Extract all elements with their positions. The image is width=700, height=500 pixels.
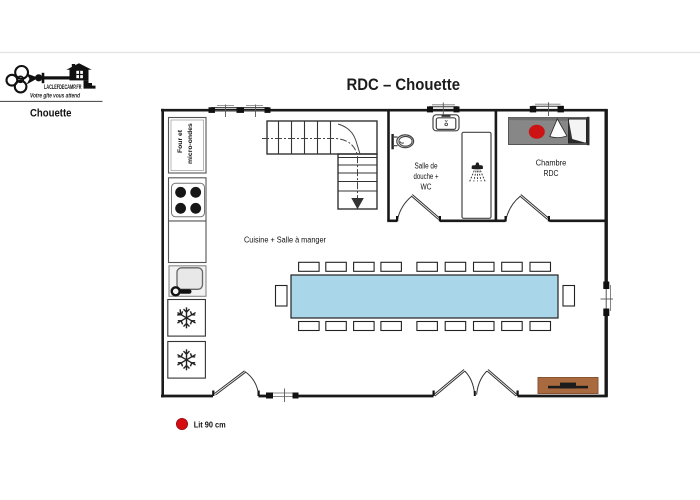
- svg-text:Lit 90 cm: Lit 90 cm: [194, 420, 226, 429]
- svg-text:WC: WC: [421, 182, 432, 191]
- svg-text:Votre gîte vous attend: Votre gîte vous attend: [30, 93, 80, 99]
- svg-text:LACLEFDECAMP.FR: LACLEFDECAMP.FR: [44, 85, 82, 91]
- svg-text:douche +: douche +: [414, 172, 439, 181]
- svg-text:Salle de: Salle de: [415, 162, 438, 171]
- svg-text:RDC: RDC: [544, 169, 559, 178]
- svg-text:Chouette: Chouette: [30, 108, 72, 120]
- svg-text:RDC – Chouette: RDC – Chouette: [347, 75, 461, 94]
- svg-text:Chambre: Chambre: [536, 158, 567, 167]
- svg-text:Cuisine + Salle à manger: Cuisine + Salle à manger: [244, 235, 326, 244]
